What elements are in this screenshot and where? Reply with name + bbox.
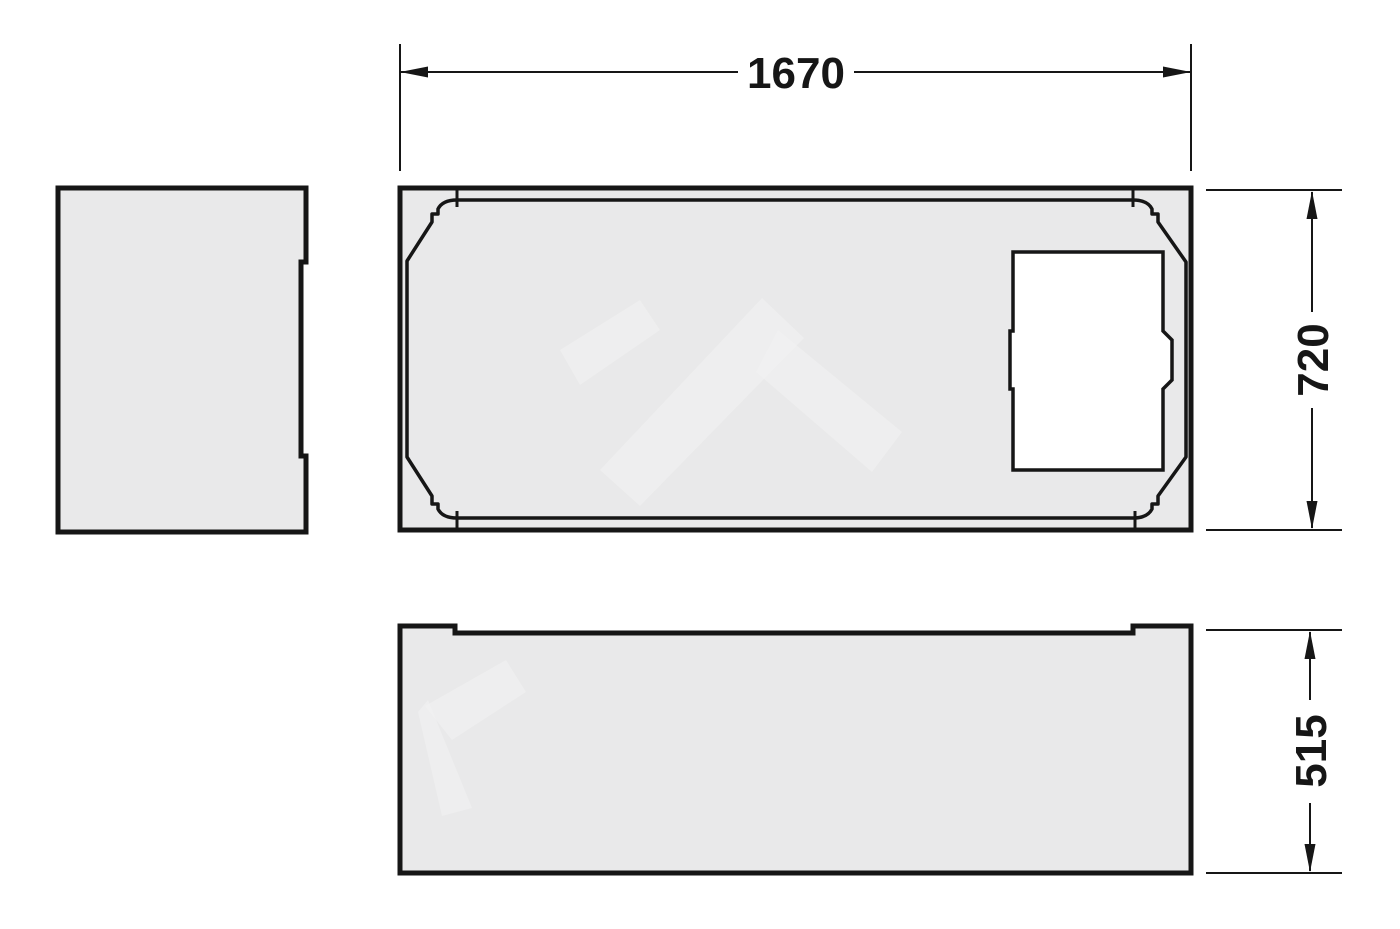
dimension-width: 1670 — [400, 44, 1191, 171]
dimension-height: 515 — [1206, 630, 1342, 873]
height-dimension-label: 515 — [1287, 714, 1336, 787]
arrowhead-down — [1307, 501, 1318, 529]
technical-drawing-canvas: 1670 720 515 — [0, 0, 1400, 929]
arrowhead-down — [1305, 844, 1316, 872]
depth-dimension-label: 720 — [1289, 323, 1338, 396]
arrowhead-up — [1307, 191, 1318, 219]
front-view-panel — [400, 626, 1191, 873]
width-dimension-label: 1670 — [747, 49, 845, 98]
side-view — [58, 188, 306, 532]
access-cutout — [1010, 252, 1172, 470]
technical-drawing-page: 1670 720 515 — [0, 0, 1400, 929]
front-view — [400, 626, 1191, 873]
arrowhead-right — [1163, 67, 1191, 78]
dimension-depth: 720 — [1206, 190, 1342, 530]
arrowhead-up — [1305, 631, 1316, 659]
side-view-panel — [58, 188, 306, 532]
plan-view — [400, 188, 1191, 530]
arrowhead-left — [400, 67, 428, 78]
